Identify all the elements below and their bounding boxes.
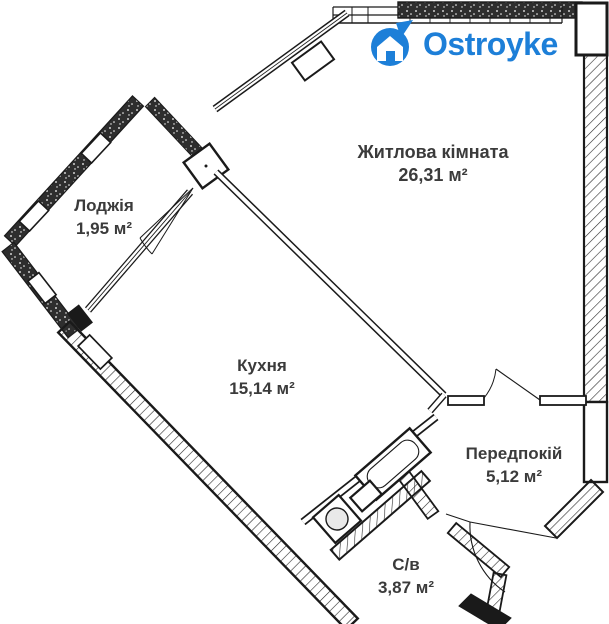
- room-label-bathroom: С/в 3,87 м²: [378, 553, 434, 599]
- floor-plan-page: Ostroyke Житлова кімната 26,31 м² Лоджія…: [0, 0, 609, 624]
- wall-bottom-solid: [459, 594, 511, 624]
- room-area: 26,31 м²: [358, 164, 509, 187]
- ostroyke-logo: Ostroyke: [370, 20, 558, 68]
- room-label-living: Житлова кімната 26,31 м²: [358, 141, 509, 187]
- pilaster-top-right: [576, 3, 607, 55]
- room-name: Кухня: [237, 356, 287, 375]
- ostroyke-logo-text: Ostroyke: [423, 26, 558, 63]
- wall-living-hallway: [448, 396, 586, 405]
- pilaster-bottom-right: [584, 402, 607, 482]
- room-area: 15,14 м²: [229, 377, 295, 400]
- wall-hallway-bathroom-b: [448, 523, 509, 577]
- room-label-hallway: Передпокій 5,12 м²: [466, 442, 563, 488]
- room-area: 5,12 м²: [466, 465, 563, 488]
- room-name: С/в: [392, 555, 419, 574]
- wall-kitchen-exterior: [58, 322, 358, 624]
- living-room-door-swing: [484, 369, 540, 400]
- room-label-kitchen: Кухня 15,14 м²: [229, 354, 295, 400]
- room-label-loggia: Лоджія 1,95 м²: [74, 194, 134, 240]
- ostroyke-logo-icon: [370, 20, 414, 68]
- room-name: Передпокій: [466, 444, 563, 463]
- room-area: 3,87 м²: [378, 576, 434, 599]
- floor-plan: [0, 0, 609, 624]
- room-name: Житлова кімната: [358, 142, 509, 162]
- wall-top-concrete-band: [398, 2, 582, 18]
- wall-diagonal-window: [145, 13, 347, 188]
- room-name: Лоджія: [74, 196, 134, 215]
- room-area: 1,95 м²: [74, 217, 134, 240]
- walls: [2, 2, 607, 624]
